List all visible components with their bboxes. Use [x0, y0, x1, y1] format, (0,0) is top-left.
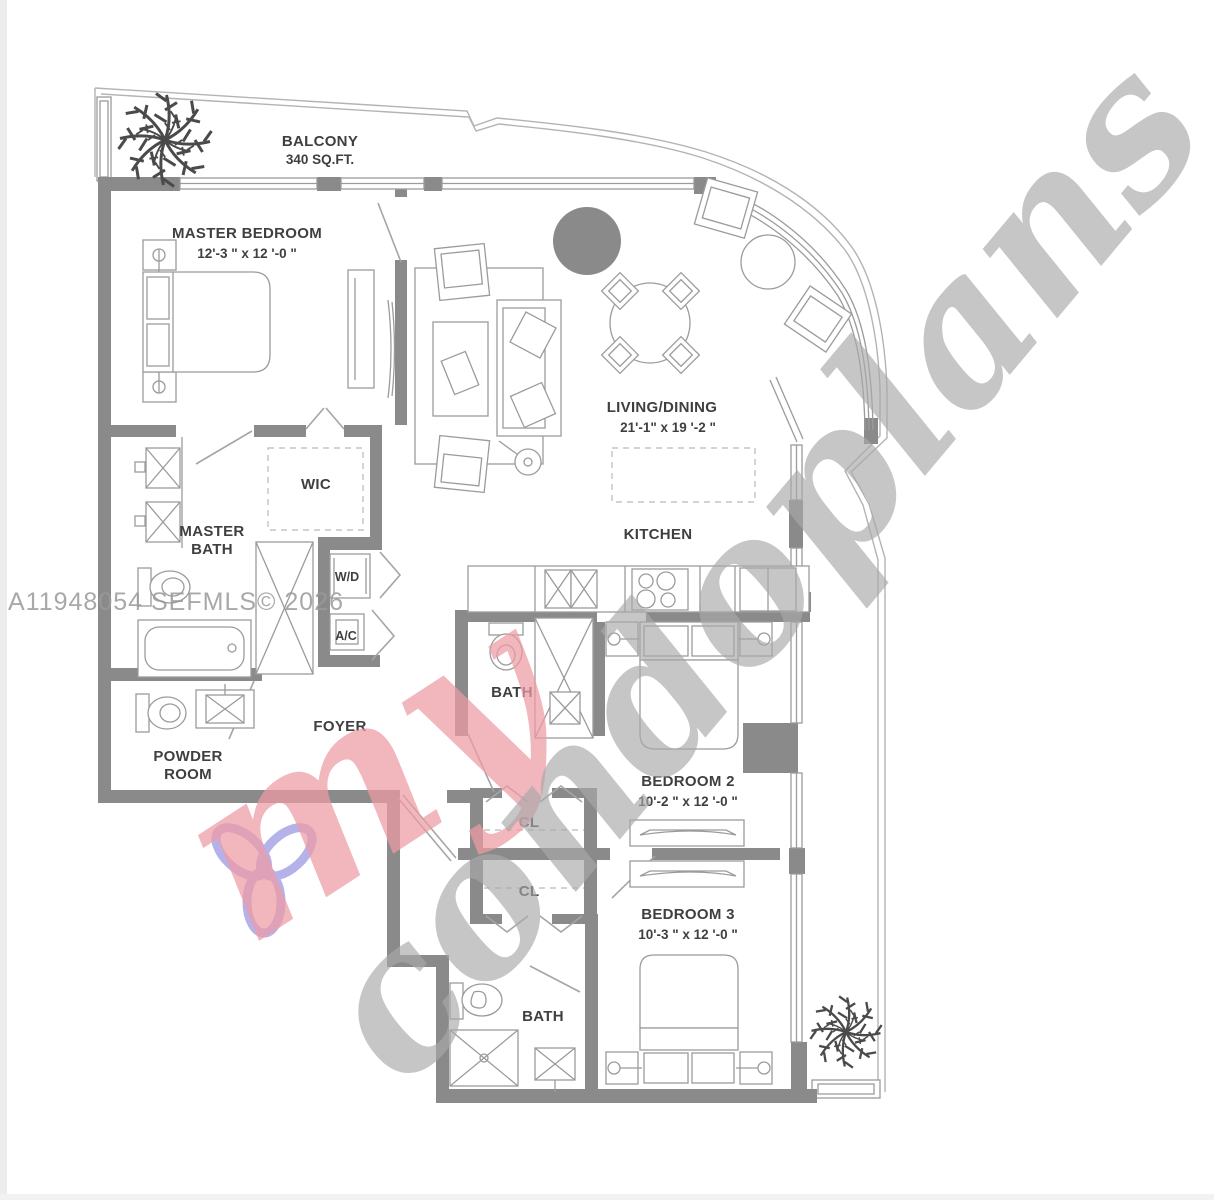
dresser	[348, 270, 374, 388]
photo-edge-left	[0, 0, 7, 1200]
pillow	[147, 277, 169, 319]
coffee-table	[433, 322, 488, 416]
pillow	[147, 324, 169, 366]
photo-edge-bottom	[0, 1194, 1214, 1200]
wic-label: WIC	[301, 476, 331, 493]
plant-top-left	[119, 94, 212, 187]
living-dining-dims: 21'-1" x 19 '-2 "	[620, 420, 716, 435]
sofa	[497, 300, 561, 436]
vanity-sink	[135, 502, 180, 542]
balcony-area: 340 SQ.FT.	[286, 152, 354, 167]
living-dining-label: LIVING/DINING	[607, 399, 718, 416]
master-bedroom-furniture	[143, 240, 395, 402]
sink	[535, 1048, 575, 1092]
window-top-2	[341, 178, 424, 189]
floor-plan-page: BALCONY 340 SQ.FT. MASTER BEDROOM 12'-3 …	[0, 0, 1214, 1200]
bedroom3-label: BEDROOM 3	[641, 906, 735, 923]
master-bedroom-dims: 12'-3 " x 12 '-0 "	[197, 246, 297, 261]
plant-bottom-right	[810, 996, 881, 1067]
planter-box-bottom-right	[812, 1080, 880, 1098]
floor-lamp	[499, 441, 541, 475]
balcony-label: BALCONY	[282, 133, 358, 150]
floor-plan-drawing: BALCONY 340 SQ.FT. MASTER BEDROOM 12'-3 …	[0, 0, 1214, 1200]
bathtub	[138, 620, 251, 677]
armchair	[434, 436, 489, 493]
listing-id-watermark: A11948054 SEFMLS© 2026	[8, 588, 344, 616]
master-bath-label-1: MASTER	[179, 523, 244, 540]
master-bedroom-door	[378, 203, 401, 262]
window-top-3	[442, 178, 694, 189]
bedroom3-dims: 10'-3 " x 12 '-0 "	[638, 927, 738, 942]
window-bedroom3	[791, 874, 802, 1042]
master-bedroom-label: MASTER BEDROOM	[172, 225, 322, 242]
planter-box-left	[97, 97, 111, 181]
master-bath-label-2: BATH	[191, 541, 233, 558]
window-bedroom2-lower	[791, 773, 802, 848]
wic-double-doors	[306, 408, 344, 429]
bed	[640, 955, 738, 1083]
vanity-sink	[135, 448, 180, 488]
wd-label: W/D	[335, 570, 359, 584]
toilet	[136, 694, 186, 732]
armchair	[434, 244, 489, 301]
window-top-1	[180, 178, 317, 189]
mirror	[388, 300, 391, 398]
side-table-dark	[553, 207, 621, 275]
balcony-table	[741, 235, 795, 289]
dining-set	[602, 273, 700, 374]
master-bath-door	[196, 431, 252, 464]
